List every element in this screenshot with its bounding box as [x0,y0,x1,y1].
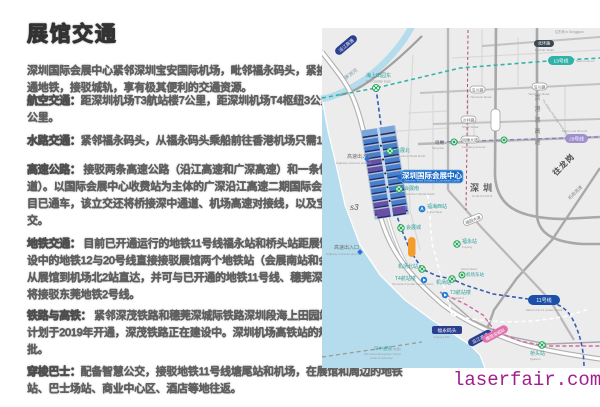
svg-text:机场东站: 机场东站 [466,271,484,278]
svg-text:Fengtang Avenue: Fengtang Avenue [462,145,486,149]
svg-text:Shenzhen World North: Shenzhen World North [395,154,426,158]
svg-text:塘尾: 塘尾 [435,139,444,146]
svg-text:凤塘大道: 凤塘大道 [462,137,478,143]
svg-text:北环路: 北环路 [538,40,551,47]
svg-text:Fuyong Pier: Fuyong Pier [434,335,450,339]
svg-text:会展城: 会展城 [406,224,421,231]
svg-text:T4航站楼: T4航站楼 [395,275,416,282]
svg-text:福海西站: 福海西站 [427,203,447,210]
svg-text:沿川路: 沿川路 [534,84,546,90]
svg-text:Tang wei: Tang wei [432,146,444,150]
svg-text:Fuhai West: Fuhai West [427,210,442,214]
svg-text:under construction: under construction [370,356,393,360]
svg-text:Metro Line 13: Metro Line 13 [576,59,595,63]
svg-text:Shenzhen World Exhibition & Co: Shenzhen World Exhibition & Convention C… [404,179,460,183]
svg-text:Highway entrance and exit: Highway entrance and exit [326,252,362,256]
svg-text:福永码头: 福永码头 [437,327,456,334]
svg-text:Terminal 4 (under construction: Terminal 4 (under construction) [392,282,433,286]
svg-text:Sea Garden East: Sea Garden East [366,80,391,84]
svg-text:澳: 澳 [534,116,540,124]
svg-text:Metro Line 11 (under constr: Metro Line 11 (under constr [526,308,563,312]
svg-text:Qiaotou: Qiaotou [530,357,541,361]
svg-text:13号线: 13号线 [554,58,569,65]
svg-text:深中通道 (在建): 深中通道 (在建) [374,345,401,352]
svg-text:高: 高 [534,127,540,135]
svg-text:桥头站: 桥头站 [530,350,545,357]
svg-text:Shenzhen World South: Shenzhen World South [404,192,435,196]
svg-text:机场北站: 机场北站 [398,263,418,270]
svg-text:机场站: 机场站 [436,279,451,286]
svg-text:SHENZHEN: SHENZHEN [472,194,493,198]
svg-text:s3: s3 [350,203,359,212]
svg-text:高速出入口: 高速出入口 [334,244,359,251]
svg-text:沿川路: 沿川路 [472,87,484,93]
svg-text:Terminal 3: Terminal 3 [450,296,464,300]
svg-text:港: 港 [534,105,540,113]
svg-text:Yanchuan Road: Yanchuan Road [470,95,492,99]
svg-text:往东莞 to Dongguan: 往东莞 to Dongguan [555,29,584,34]
svg-text:沙井路: 沙井路 [463,117,475,123]
svg-text:Beihuan Road: Beihuan Road [535,48,554,52]
svg-text:Airport East: Airport East [461,267,477,271]
svg-text:深圳国际会展中心: 深圳国际会展中心 [402,170,462,180]
svg-text:会展南: 会展南 [404,185,419,192]
svg-text:京: 京 [534,94,540,102]
svg-text:Highway entrance and exit: Highway entrance and exit [336,161,372,165]
svg-text:会展北: 会展北 [395,147,410,154]
svg-text:速: 速 [534,139,540,146]
svg-text:Shajin Road: Shajin Road [462,125,479,129]
svg-text:Fuyong: Fuyong [462,245,472,249]
svg-text:深圳: 深圳 [470,182,496,193]
svg-text:11号线: 11号线 [536,297,551,304]
svg-text:福永站: 福永站 [462,238,477,245]
svg-text:T3航站楼: T3航站楼 [450,289,471,296]
svg-text:海上田园东: 海上田园东 [366,72,391,79]
